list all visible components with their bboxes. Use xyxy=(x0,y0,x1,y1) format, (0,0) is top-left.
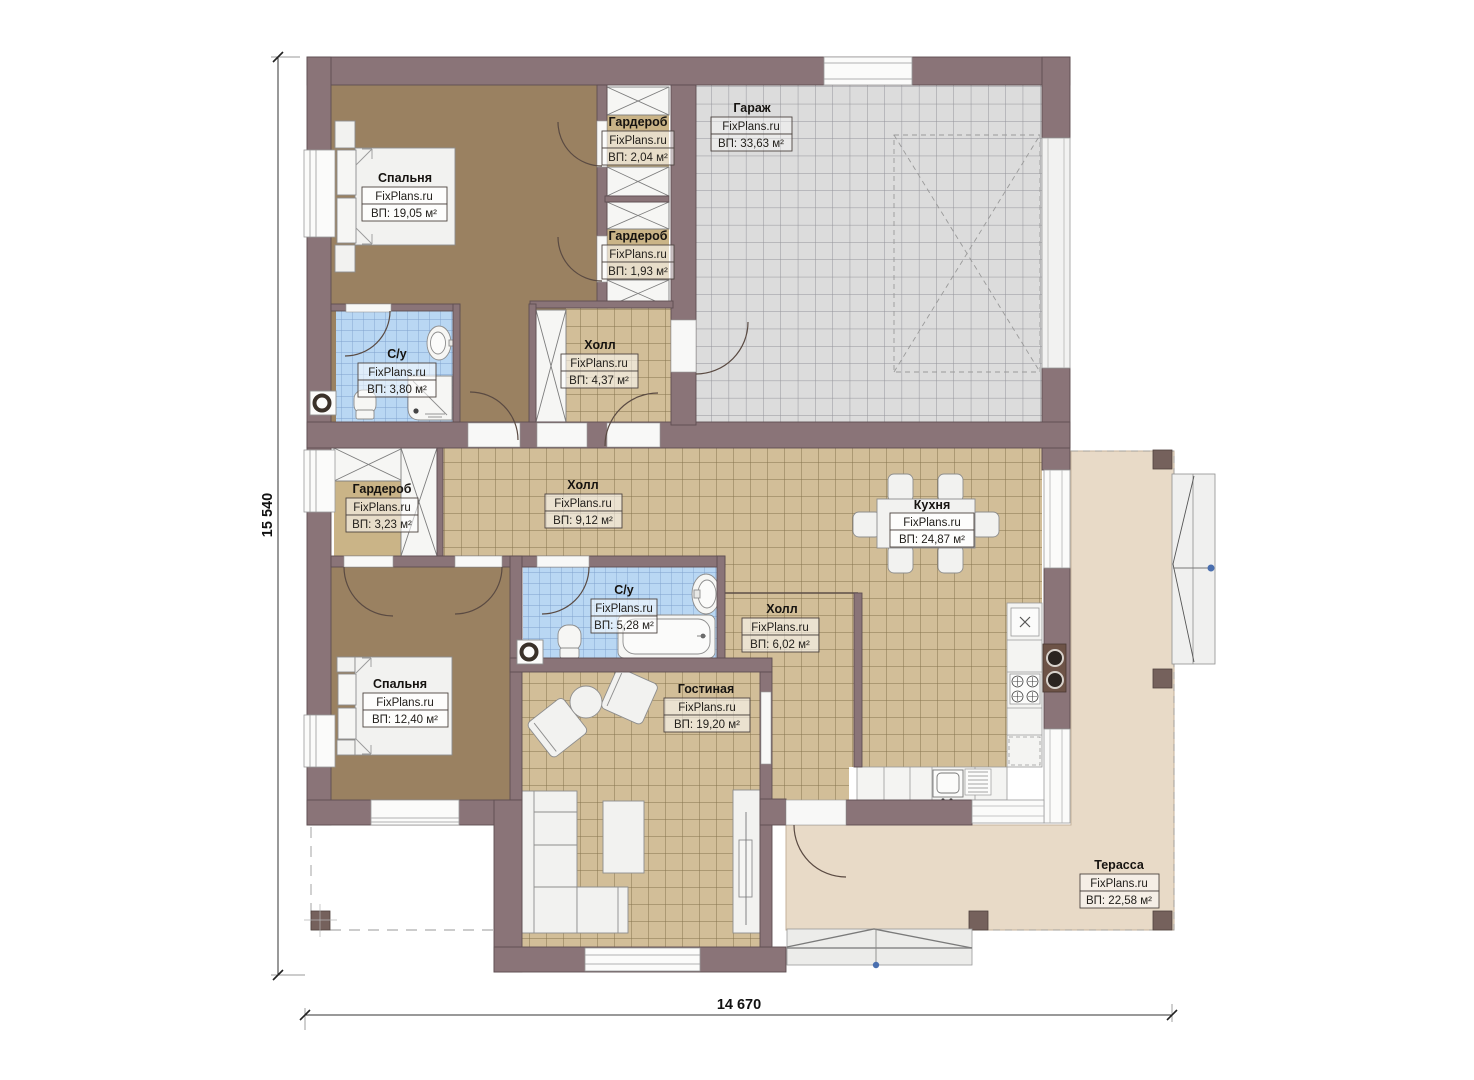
svg-text:Кухня: Кухня xyxy=(914,498,951,512)
svg-text:ВП: 9,12 м²: ВП: 9,12 м² xyxy=(553,515,613,527)
svg-text:Гараж: Гараж xyxy=(733,101,770,115)
svg-text:ВП: 19,20 м²: ВП: 19,20 м² xyxy=(674,719,740,731)
svg-text:ВП: 3,23 м²: ВП: 3,23 м² xyxy=(352,519,412,531)
svg-text:Гардероб: Гардероб xyxy=(352,482,411,496)
svg-text:FixPlans.ru: FixPlans.ru xyxy=(903,517,961,529)
svg-text:Гардероб: Гардероб xyxy=(608,115,667,129)
svg-text:ВП: 4,37 м²: ВП: 4,37 м² xyxy=(569,375,629,387)
svg-text:14 670: 14 670 xyxy=(717,997,761,1013)
svg-text:Спальня: Спальня xyxy=(378,171,432,185)
svg-text:Холл: Холл xyxy=(567,478,598,492)
svg-text:FixPlans.ru: FixPlans.ru xyxy=(678,702,736,714)
svg-text:Холл: Холл xyxy=(584,338,615,352)
svg-text:FixPlans.ru: FixPlans.ru xyxy=(609,249,667,261)
svg-text:Холл: Холл xyxy=(766,602,797,616)
svg-text:ВП: 5,28 м²: ВП: 5,28 м² xyxy=(594,620,654,632)
svg-text:ВП: 3,80 м²: ВП: 3,80 м² xyxy=(367,384,427,396)
svg-text:FixPlans.ru: FixPlans.ru xyxy=(1090,878,1148,890)
svg-text:FixPlans.ru: FixPlans.ru xyxy=(353,502,411,514)
svg-text:С/у: С/у xyxy=(387,347,407,361)
svg-text:FixPlans.ru: FixPlans.ru xyxy=(376,697,434,709)
svg-text:FixPlans.ru: FixPlans.ru xyxy=(595,603,653,615)
svg-text:ВП: 24,87 м²: ВП: 24,87 м² xyxy=(899,534,965,546)
svg-text:ВП: 1,93 м²: ВП: 1,93 м² xyxy=(608,266,668,278)
svg-text:Спальня: Спальня xyxy=(373,677,427,691)
svg-text:FixPlans.ru: FixPlans.ru xyxy=(751,622,809,634)
svg-text:Терасса: Терасса xyxy=(1094,858,1145,872)
svg-text:FixPlans.ru: FixPlans.ru xyxy=(609,135,667,147)
svg-text:FixPlans.ru: FixPlans.ru xyxy=(554,498,612,510)
svg-text:FixPlans.ru: FixPlans.ru xyxy=(570,358,628,370)
svg-text:FixPlans.ru: FixPlans.ru xyxy=(375,191,433,203)
svg-text:ВП: 33,63 м²: ВП: 33,63 м² xyxy=(718,138,784,150)
svg-text:ВП: 19,05 м²: ВП: 19,05 м² xyxy=(371,208,437,220)
svg-text:FixPlans.ru: FixPlans.ru xyxy=(722,121,780,133)
svg-text:С/у: С/у xyxy=(614,583,634,597)
svg-text:ВП: 12,40 м²: ВП: 12,40 м² xyxy=(372,714,438,726)
svg-text:15 540: 15 540 xyxy=(260,493,276,537)
svg-text:ВП: 2,04 м²: ВП: 2,04 м² xyxy=(608,152,668,164)
svg-text:ВП: 6,02 м²: ВП: 6,02 м² xyxy=(750,639,810,651)
svg-text:ВП: 22,58 м²: ВП: 22,58 м² xyxy=(1086,895,1152,907)
svg-text:Гардероб: Гардероб xyxy=(608,229,667,243)
svg-text:Гостиная: Гостиная xyxy=(678,682,735,696)
svg-text:FixPlans.ru: FixPlans.ru xyxy=(368,367,426,379)
